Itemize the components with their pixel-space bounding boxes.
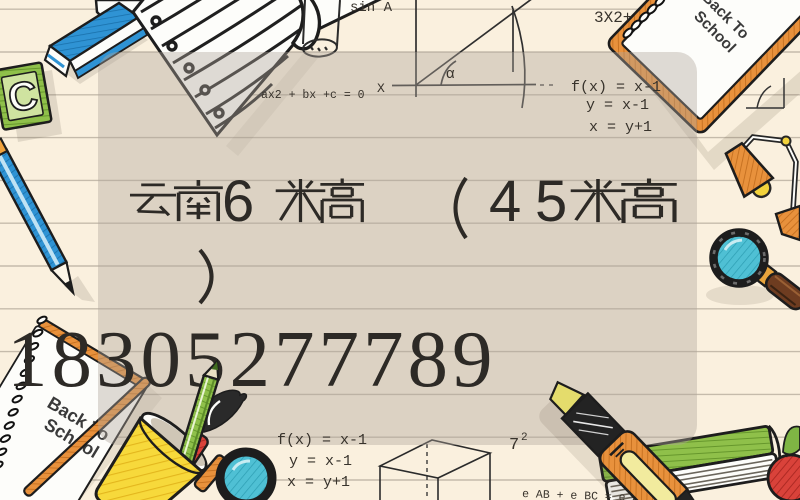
svg-text:x = y+1: x = y+1	[589, 119, 652, 136]
svg-text:5: 5	[535, 169, 567, 234]
svg-text:3X2+: 3X2+	[594, 9, 632, 27]
svg-text:X: X	[377, 81, 385, 96]
svg-text:f(x) = x-1: f(x) = x-1	[277, 432, 367, 449]
svg-text:f(x) = x-1: f(x) = x-1	[571, 79, 661, 96]
svg-text:6: 6	[222, 169, 254, 234]
svg-text:18305277789: 18305277789	[7, 314, 497, 404]
svg-text:sin A: sin A	[350, 0, 393, 16]
svg-text:y = x-1: y = x-1	[586, 97, 649, 114]
svg-text:ax2 + bx +c = 0: ax2 + bx +c = 0	[261, 89, 365, 102]
svg-text:2: 2	[521, 432, 528, 444]
svg-text:7: 7	[509, 436, 519, 455]
svg-text:x = y+1: x = y+1	[287, 474, 350, 491]
svg-text:4: 4	[489, 169, 521, 234]
svg-text:α: α	[446, 65, 455, 82]
svg-text:y = x-1: y = x-1	[289, 453, 352, 470]
